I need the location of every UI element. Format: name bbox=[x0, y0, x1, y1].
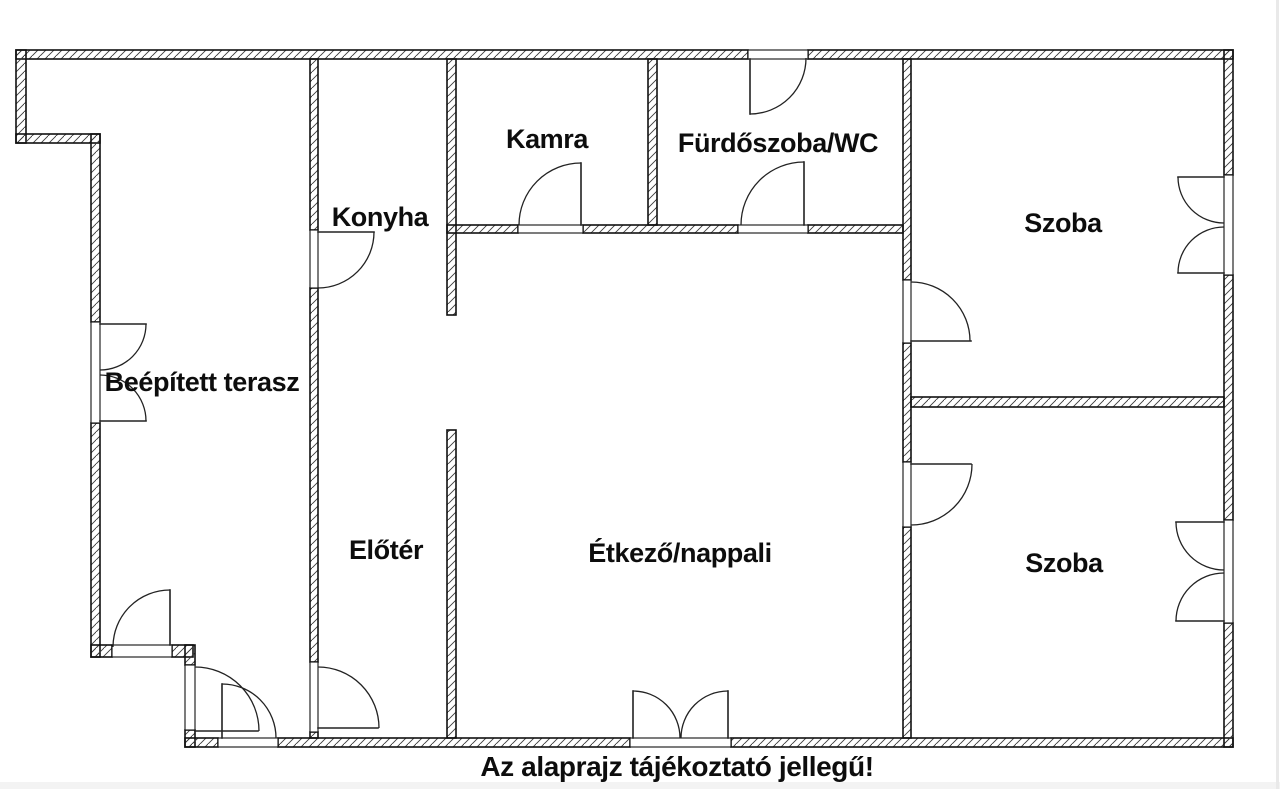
wall-segment bbox=[911, 397, 1224, 407]
wall-segment bbox=[648, 59, 657, 225]
wall-opening bbox=[738, 225, 808, 233]
wall-segment bbox=[1224, 275, 1233, 520]
page-bottom-strip bbox=[0, 782, 1280, 789]
page-right-edge bbox=[1276, 0, 1279, 789]
wall-segment bbox=[91, 645, 112, 657]
wall-opening bbox=[518, 225, 583, 233]
wall-opening bbox=[903, 280, 911, 343]
wall-segment bbox=[310, 59, 318, 230]
wall-segment bbox=[91, 134, 100, 322]
wall-segment bbox=[310, 288, 318, 662]
room-label-terasz: Beépített terasz bbox=[105, 367, 300, 397]
wall-opening bbox=[185, 665, 195, 730]
floorplan-svg: Beépített teraszKonyhaKamraFürdőszoba/WC… bbox=[0, 0, 1280, 789]
wall-segment bbox=[808, 50, 1233, 59]
wall-segment bbox=[185, 645, 195, 665]
wall-segment bbox=[16, 50, 26, 143]
wall-segment bbox=[278, 738, 630, 747]
wall-segment bbox=[731, 738, 1233, 747]
wall-segment bbox=[1224, 623, 1233, 747]
room-label-furdoszoba: Fürdőszoba/WC bbox=[678, 128, 878, 158]
room-label-szoba-1: Szoba bbox=[1024, 208, 1103, 238]
wall-opening bbox=[748, 50, 808, 59]
wall-opening bbox=[91, 322, 100, 423]
wall-opening bbox=[218, 738, 278, 747]
wall-opening bbox=[630, 738, 731, 747]
wall-segment bbox=[903, 59, 911, 280]
room-label-eloter: Előtér bbox=[349, 535, 424, 565]
disclaimer-text: Az alaprajz tájékoztató jellegű! bbox=[480, 751, 873, 782]
wall-segment bbox=[808, 225, 903, 233]
room-label-konyha: Konyha bbox=[332, 202, 430, 232]
wall-opening bbox=[1224, 520, 1233, 623]
room-label-etkezo: Étkező/nappali bbox=[588, 537, 771, 568]
wall-opening bbox=[112, 645, 172, 657]
wall-segment bbox=[16, 50, 748, 59]
wall-segment bbox=[903, 527, 911, 738]
room-label-kamra: Kamra bbox=[506, 124, 589, 154]
room-label-szoba-2: Szoba bbox=[1025, 548, 1104, 578]
wall-opening bbox=[1224, 175, 1233, 275]
wall-segment bbox=[903, 343, 911, 462]
wall-opening bbox=[310, 662, 318, 732]
wall-segment bbox=[447, 59, 456, 315]
wall-segment bbox=[185, 738, 218, 747]
wall-segment bbox=[16, 134, 100, 143]
wall-segment bbox=[447, 430, 456, 738]
wall-segment bbox=[91, 423, 100, 657]
wall-segment bbox=[583, 225, 738, 233]
wall-segment bbox=[1224, 50, 1233, 175]
floorplan-page: Beépített teraszKonyhaKamraFürdőszoba/WC… bbox=[0, 0, 1280, 789]
wall-segment bbox=[310, 732, 318, 738]
wall-segment bbox=[447, 225, 518, 233]
wall-opening bbox=[903, 462, 911, 527]
wall-opening bbox=[310, 230, 318, 288]
